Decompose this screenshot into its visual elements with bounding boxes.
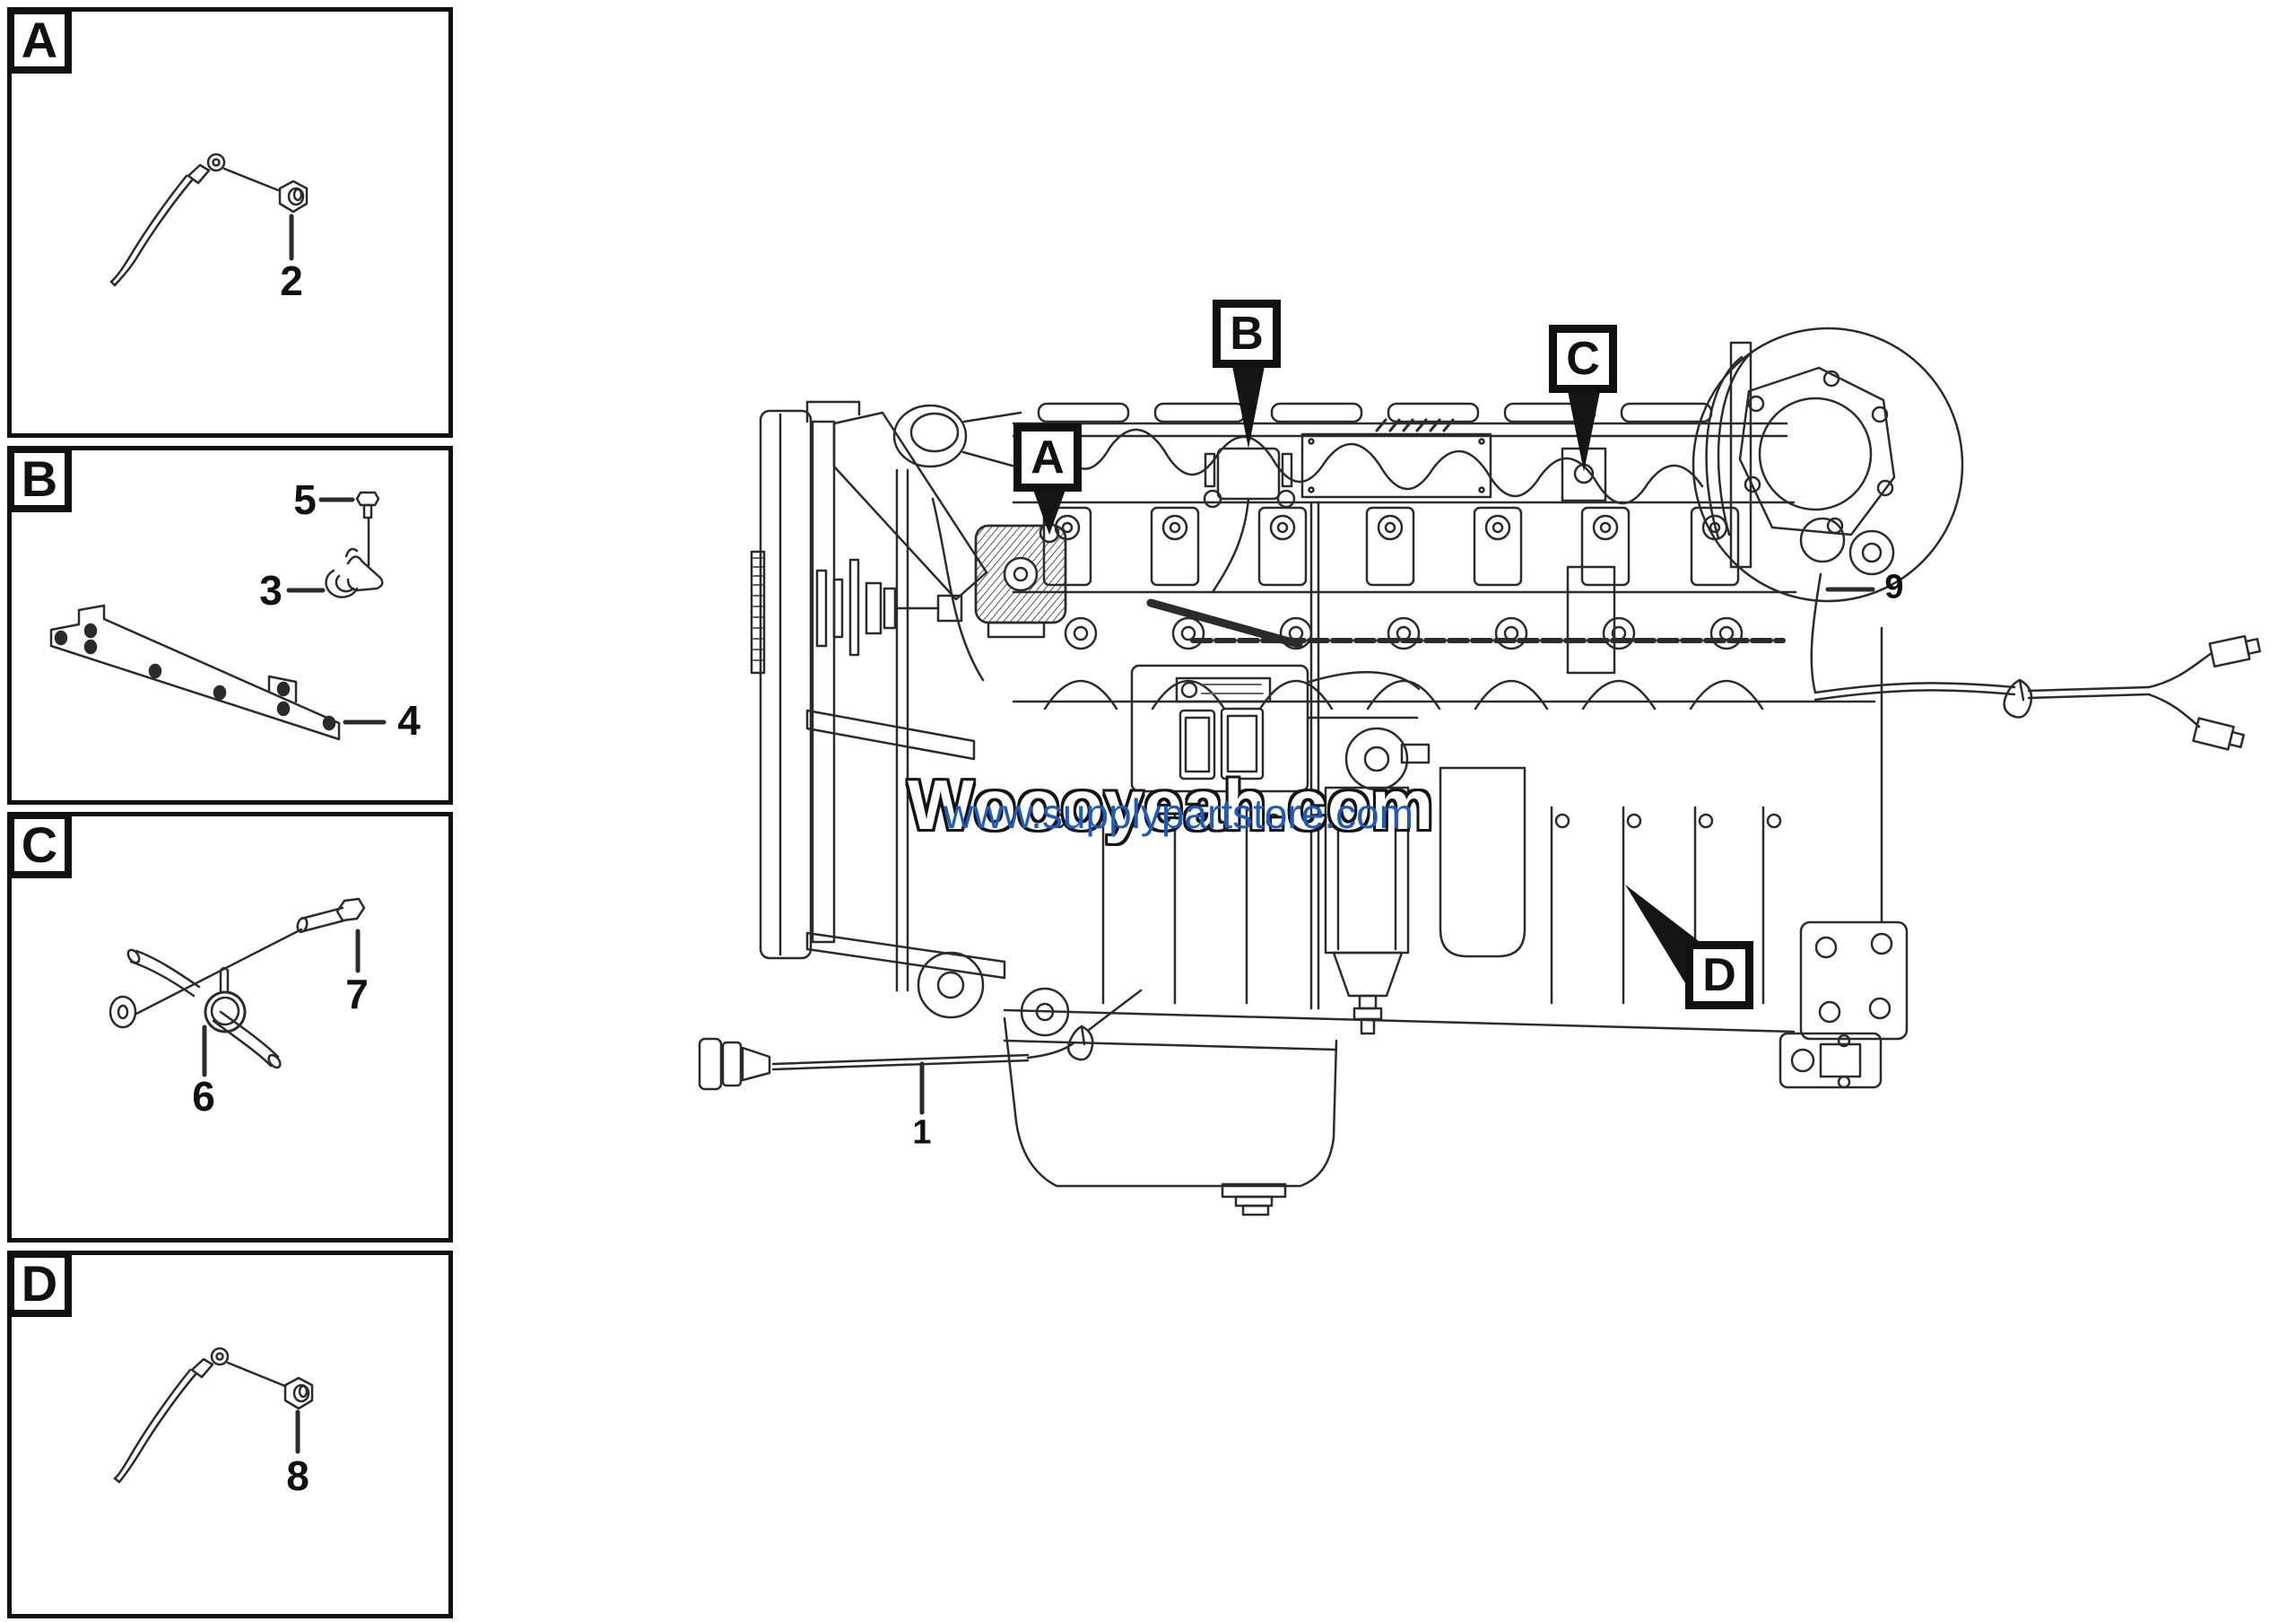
engine-callout-d: D: [1685, 941, 1753, 1009]
parts-catalog-page: Woooyeah.com www.supplypartstore.com A B…: [0, 0, 2296, 1622]
part-number-5: 5: [293, 475, 317, 524]
panel-c-label: C: [7, 812, 72, 878]
detail-panel-b: [7, 446, 453, 805]
part-number-3: 3: [259, 566, 283, 615]
panel-b-label: B: [7, 446, 72, 512]
part-number-7: 7: [345, 970, 369, 1018]
part-number-9: 9: [1884, 569, 1903, 607]
detail-panel-c: [7, 812, 453, 1243]
panel-a-label: A: [7, 7, 72, 74]
engine-callout-b: B: [1213, 300, 1281, 368]
part-number-1: 1: [912, 1114, 931, 1153]
detail-panel-d: [7, 1251, 453, 1618]
detail-panel-a: [7, 7, 453, 438]
panel-d-label: D: [7, 1251, 72, 1317]
engine-callout-a: A: [1013, 423, 1082, 492]
part-number-8: 8: [286, 1452, 309, 1500]
part-number-6: 6: [192, 1072, 215, 1121]
part-number-4: 4: [397, 696, 421, 745]
part-number-2: 2: [280, 257, 303, 305]
engine-callout-c: C: [1549, 325, 1617, 393]
watermark-url-text: www.supplypartstore.com: [944, 789, 1413, 838]
